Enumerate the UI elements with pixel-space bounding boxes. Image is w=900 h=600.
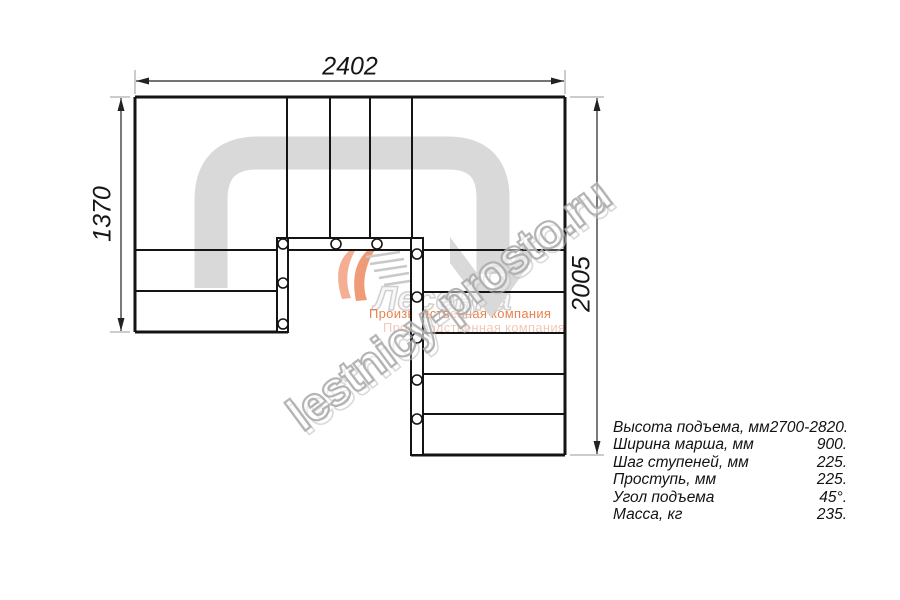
dim-left-height-label: 1370 xyxy=(89,186,118,242)
spec-label: Проступь, мм xyxy=(613,471,716,488)
spec-row: Шаг ступеней, мм 225. xyxy=(613,454,847,471)
logo-steps-icon xyxy=(366,252,410,285)
dim-top-width-label: 2402 xyxy=(322,53,378,82)
stair-plan-page: Лесенка Производственная компания Произв… xyxy=(0,0,900,600)
spec-value: 45°. xyxy=(819,489,847,506)
spec-row: Угол подъема 45°. xyxy=(613,489,847,506)
spec-label: Масса, кг xyxy=(613,506,682,523)
spec-row: Высота подъема, мм 2700-2820. xyxy=(613,419,847,436)
spec-value: 900. xyxy=(817,436,847,453)
dim-right-height-label: 2005 xyxy=(568,256,597,312)
spec-label: Угол подъема xyxy=(613,489,714,506)
spec-value: 2700-2820. xyxy=(770,419,848,436)
spec-label: Высота подъема, мм xyxy=(613,419,770,436)
spec-label: Ширина марша, мм xyxy=(613,436,754,453)
spec-value: 235. xyxy=(817,506,847,523)
spec-row: Ширина марша, мм 900. xyxy=(613,436,847,453)
spec-label: Шаг ступеней, мм xyxy=(613,454,749,471)
spec-row: Проступь, мм 225. xyxy=(613,471,847,488)
spec-row: Масса, кг 235. xyxy=(613,506,847,523)
spec-value: 225. xyxy=(817,454,847,471)
spec-value: 225. xyxy=(817,471,847,488)
specs-table: Высота подъема, мм 2700-2820. Ширина мар… xyxy=(613,419,847,523)
logo-swoosh xyxy=(338,244,379,301)
